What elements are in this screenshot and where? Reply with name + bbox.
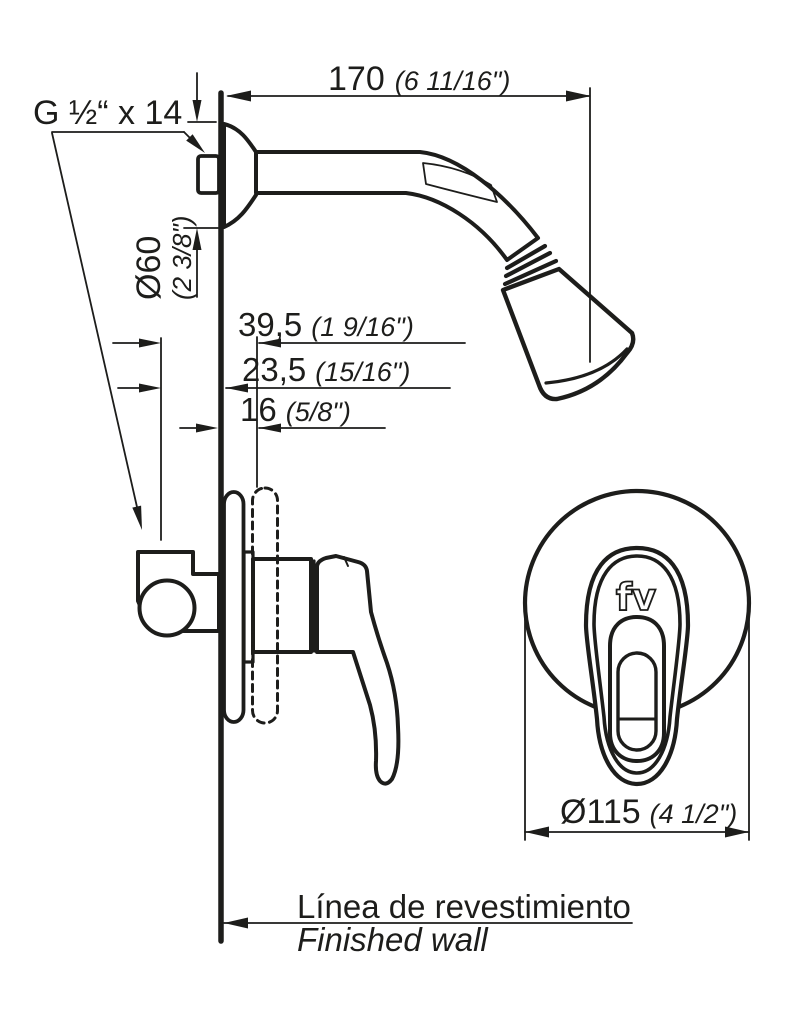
arm-flange: [224, 124, 257, 227]
arrow-right-icon: [139, 339, 161, 348]
arrow-left-icon: [525, 827, 549, 838]
dim-text: Ø115(4 1/2"): [560, 793, 737, 831]
valve-body-side: [138, 552, 219, 636]
dim-depths: 39,5(1 9/16") 23,5(15/16") 16(5/8"): [113, 306, 465, 540]
shower-mixer-diagram: 170(6 11/16") G ½“ x 14 Ø60 (2 3/8") 39,…: [0, 0, 795, 1024]
mixer-front-view: fv: [525, 491, 749, 784]
inlet-nipple: [198, 156, 219, 193]
arrow-left-icon: [224, 918, 248, 929]
arrow-right-icon: [139, 384, 161, 393]
arm-tube: [256, 152, 538, 260]
wall-label: Línea de revestimiento Finished wall: [224, 888, 632, 958]
dim-text: 23,5(15/16"): [242, 351, 410, 388]
valve-inlet-port: [140, 581, 195, 636]
dim-text-inch: (2 3/8"): [167, 216, 197, 300]
dim-text: 39,5(1 9/16"): [238, 306, 414, 343]
dim-text: Ø60: [130, 236, 168, 300]
fv-logo: fv: [616, 576, 656, 619]
arrow-down-icon: [193, 100, 202, 122]
handle-side: [317, 556, 398, 784]
technical-drawing-page: 170(6 11/16") G ½“ x 14 Ø60 (2 3/8") 39,…: [0, 0, 795, 1024]
dim-text: 170(6 11/16"): [328, 60, 510, 98]
arrow-icon: [132, 506, 142, 530]
wall-label-es: Línea de revestimiento: [297, 888, 631, 925]
dim-text: 16(5/8"): [240, 391, 351, 428]
thread-label: G ½“ x 14: [33, 94, 205, 530]
thread-label-text: G ½“ x 14: [33, 94, 182, 132]
arrow-right-icon: [566, 91, 591, 102]
leader-line-long: [52, 133, 137, 507]
shower-head: [503, 246, 633, 399]
mixer-side-view: [224, 488, 398, 784]
cartridge-sleeve: [253, 559, 311, 652]
wall-label-en: Finished wall: [297, 921, 489, 958]
arrow-right-icon: [196, 424, 218, 433]
arrow-left-icon: [226, 91, 251, 102]
escutcheon-side: [224, 492, 244, 722]
shower-arm: [224, 124, 538, 260]
